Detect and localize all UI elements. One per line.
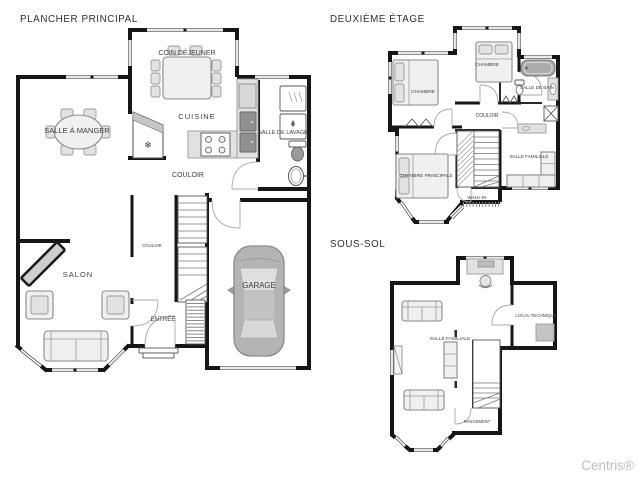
sofa	[44, 331, 108, 361]
main-floor-title: PLANCHER PRINCIPAL	[20, 14, 138, 25]
fireplace-icon	[21, 242, 65, 286]
snowflake-icon: ❄	[144, 140, 152, 150]
floor-plan-second: DEUXIÈME ÉTAGE CHAMBRE CHAMBRE SALLE DE …	[330, 14, 558, 223]
armchair	[26, 291, 53, 319]
wall-shelf	[394, 346, 402, 374]
car-icon	[227, 246, 291, 356]
room-label-couloir-2: COULOIR	[142, 243, 162, 248]
bed-left	[393, 60, 438, 105]
basement-title: SOUS-SOL	[330, 239, 385, 250]
basement-sofa	[402, 301, 442, 321]
room-label-rangement: RANGEMENT	[464, 419, 491, 424]
kitchen-sink	[240, 112, 256, 131]
hall-dresser	[518, 124, 546, 133]
second-floor-title: DEUXIÈME ÉTAGE	[330, 14, 425, 25]
bed-top	[476, 42, 512, 82]
room-label-local-technique: LOCAL TECHNIQUE	[515, 313, 556, 318]
floorplan-sheet: ❄	[0, 0, 640, 480]
stove-icon	[201, 133, 230, 156]
room-label-entree: ENTRÉE	[150, 316, 175, 323]
stairs-basement	[473, 340, 500, 408]
kitchen-cabinet	[239, 84, 256, 108]
room-label-couloir: COULOIR	[172, 172, 204, 179]
speaker-icon	[455, 330, 458, 337]
room-label-salle-familiale-bs: SALLE FAMILIALE	[430, 336, 471, 342]
floor-plan-main: ❄	[16, 14, 311, 371]
room-label-chambre-2: CHAMBRE	[411, 89, 435, 95]
desk-chair	[480, 276, 491, 287]
room-label-couloir-2f: COULOIR	[476, 113, 499, 119]
room-label-cuisine: CUISINE	[178, 112, 215, 121]
porch-step-2	[143, 353, 174, 358]
kitchen-sink-2	[240, 133, 256, 152]
bathroom-fixtures	[515, 60, 558, 133]
room-label-salon: SALON	[63, 270, 93, 279]
speaker-icon-2	[455, 381, 458, 388]
basement-sofa-2	[404, 390, 444, 410]
room-label-salle-de-bain: SALLE DE BAIN	[520, 85, 554, 90]
room-label-garage: GARAGE	[242, 281, 275, 290]
desk	[467, 259, 503, 288]
linen-closet	[544, 106, 558, 121]
fridge-icon: ❄	[133, 112, 163, 158]
floor-plan-basement: SOUS-SOL SALLE FAMILIALE LOCAL TECHNIQUE…	[330, 239, 557, 451]
furnace-icon	[536, 324, 554, 341]
salon-furniture	[21, 242, 129, 361]
room-label-chambre-1: CHAMBRE	[475, 62, 499, 68]
room-label-coin-dejeuner: COIN DÉJEUNER	[158, 48, 215, 57]
room-label-chambre-principale: CHAMBRE PRINCIPALE	[399, 173, 453, 179]
bathtub-icon	[521, 60, 555, 76]
stairs-main	[178, 196, 207, 302]
stairs-second	[457, 131, 499, 187]
armchair-2	[102, 291, 129, 319]
room-label-salle-familiale-2f: SALLE FAMILIALE	[510, 154, 549, 159]
dryer-icon	[280, 86, 306, 111]
room-label-salle-de-lavage: SALLE DE LAVAGE	[258, 130, 308, 136]
toilet-icon	[289, 141, 306, 161]
centris-watermark: Centris®	[581, 458, 634, 473]
room-label-walk-in: WALK-IN	[468, 195, 487, 200]
porch-step	[139, 348, 178, 353]
sink-icon	[289, 167, 309, 186]
room-label-salle-a-manger: SALLE À MANGER	[44, 126, 110, 135]
